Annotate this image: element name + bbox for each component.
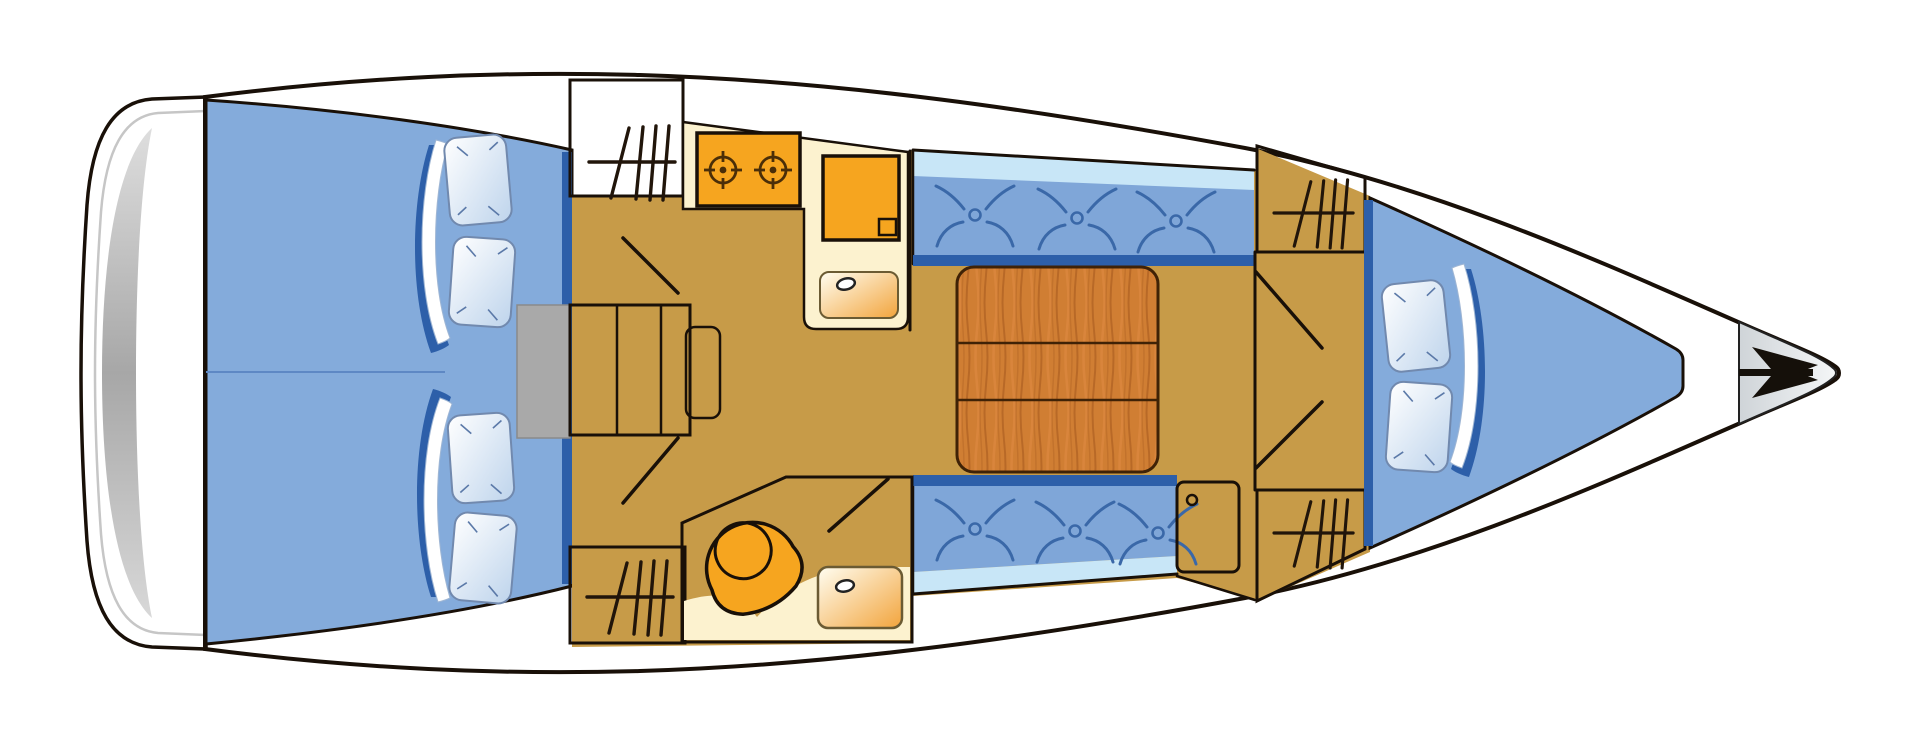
swim-platform (81, 97, 206, 649)
salon-table (957, 267, 1158, 472)
settee-cushions (913, 480, 1177, 572)
galley-sink (820, 272, 898, 318)
v-berth (1370, 198, 1683, 548)
pillow (443, 133, 512, 226)
fridge (823, 156, 899, 240)
table-top (957, 267, 1158, 472)
settee-front-edge (913, 255, 1254, 266)
engine-box (517, 305, 570, 438)
pillow (448, 511, 517, 604)
yacht-floorplan (0, 0, 1920, 746)
settee-starboard (913, 150, 1254, 266)
aft-wardrobe-top (570, 80, 683, 200)
head-sink (818, 567, 902, 628)
pillow (448, 236, 516, 328)
floorplan-canvas (0, 0, 1920, 746)
pillow (1385, 381, 1453, 473)
v-berth-edge (1364, 200, 1373, 546)
hanging-locker-icon (589, 126, 675, 200)
pillow (1381, 279, 1452, 373)
pillow (447, 412, 515, 504)
settee-front-edge (913, 475, 1177, 486)
swim-platform-step-shadow (102, 128, 152, 618)
anchor-locker (1739, 322, 1836, 424)
forward-cabin (1364, 198, 1683, 548)
